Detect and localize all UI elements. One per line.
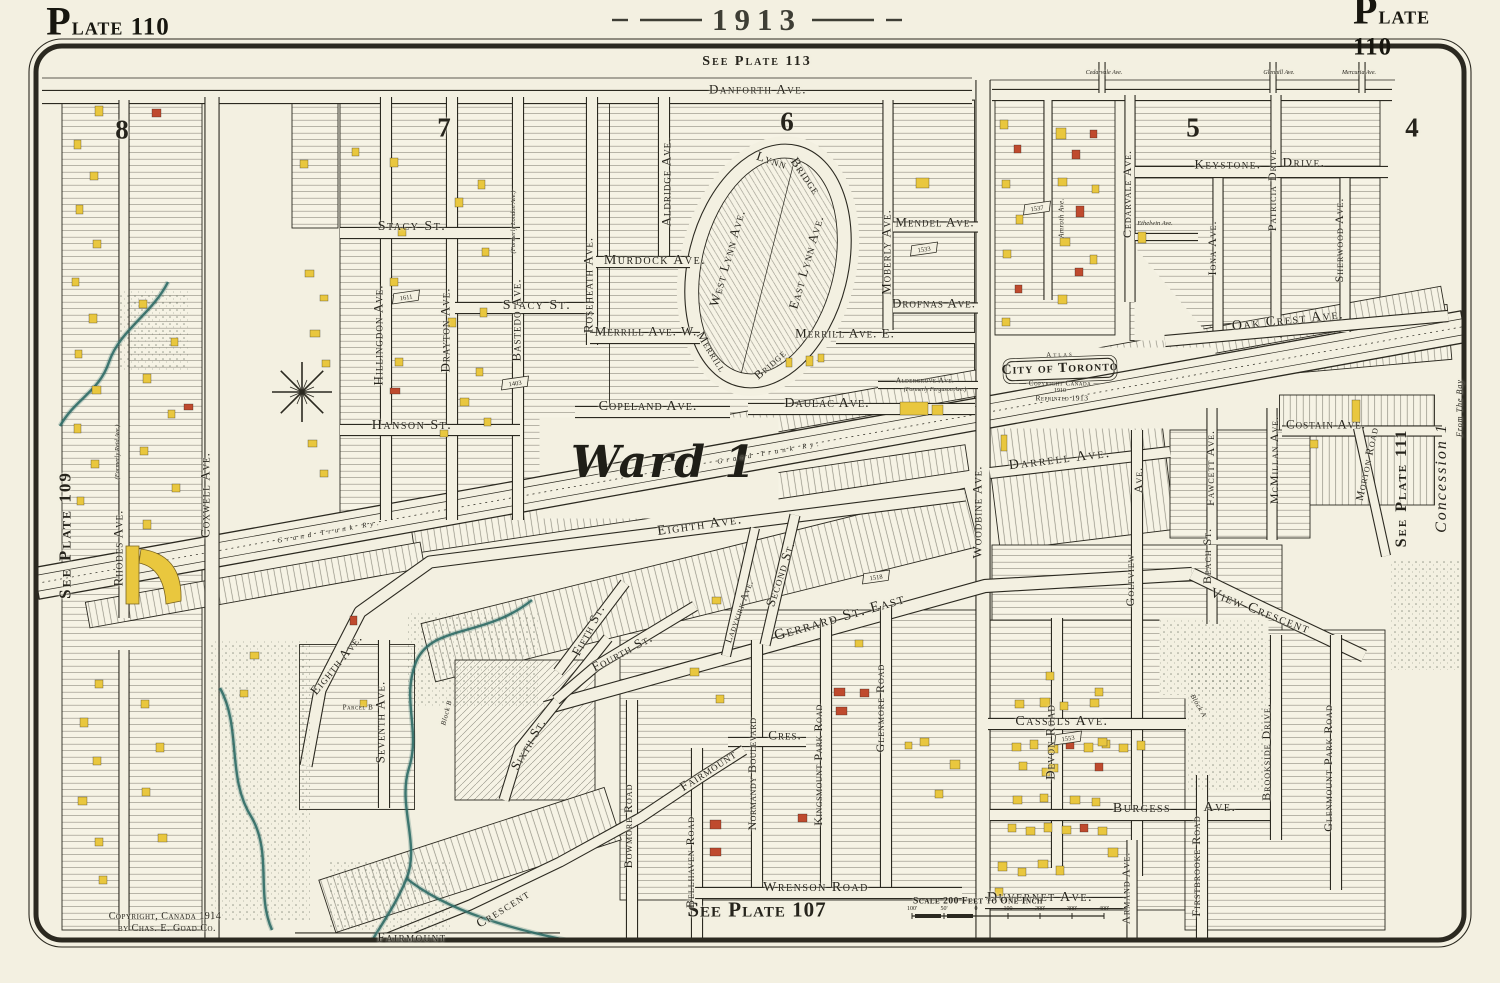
scale-tick-label: 100' [907, 906, 917, 912]
bowmore-road-label: Bowmore Road [622, 784, 634, 869]
building-yellow [935, 790, 943, 798]
rhodes-ave-label: Rhodes Ave. [112, 510, 125, 587]
hillingdon-ave-label: Hillingdon Ave. [372, 284, 385, 385]
map-page: 140315181533153715531611100'50'0100200'3… [0, 0, 1500, 983]
rhodes-formerly: (Formerly Reid Ave.) [115, 425, 122, 480]
scale-tick-label: 400' [1099, 906, 1109, 912]
building-yellow [80, 718, 88, 727]
building-yellow [250, 652, 259, 659]
kingsmount-park-road-label: Kingsmount Park Road [812, 704, 824, 826]
cedarvale-ave-label: Cedarvale Ave. [1121, 150, 1133, 238]
ravine-stipple [210, 640, 310, 920]
aldergrove-ave-label: Aldergrove Ave. [896, 376, 955, 384]
building-yellow [310, 330, 320, 337]
murdock-ave-label: Murdock Ave. [604, 254, 706, 268]
ravine-stipple [120, 290, 190, 370]
glenmore-road-label: Glenmore Road [874, 664, 886, 753]
building-yellow [1018, 868, 1026, 876]
building-yellow [1015, 700, 1024, 708]
building-yellow [478, 180, 485, 189]
building-red [1014, 145, 1021, 153]
building-yellow [305, 270, 314, 277]
building-yellow [1098, 738, 1107, 746]
building-red [350, 616, 357, 625]
building-yellow [712, 597, 721, 604]
building-yellow [690, 668, 699, 676]
scale-tick-label: 0 [975, 906, 978, 912]
ethelwin-ave-label: Ethelwin Ave. [1137, 221, 1173, 228]
see-plate-113: See Plate 113 [702, 55, 811, 69]
building-yellow [1137, 741, 1145, 750]
building-yellow [1092, 185, 1099, 193]
building-red [860, 689, 869, 697]
stamp-reprinted: Reprinted 1913 [1035, 394, 1088, 402]
amroth-ave-label: Amroth Ave. [1059, 198, 1066, 238]
building-yellow [1056, 128, 1066, 139]
firstbrooke-road-label: Firstbrooke Road [1190, 815, 1202, 916]
building-yellow [1056, 866, 1064, 875]
building-yellow [95, 680, 103, 688]
scale-tick-label: 200' [1035, 906, 1045, 912]
building-yellow [1002, 180, 1010, 188]
building-yellow [1095, 688, 1103, 696]
building-yellow [1016, 215, 1023, 224]
building-yellow [72, 278, 79, 286]
city-block [620, 610, 990, 900]
building-yellow [900, 402, 928, 415]
building-yellow [92, 386, 101, 394]
map-year-title: 1913 [712, 2, 802, 38]
concession-1-label: Concession 1 [1434, 423, 1450, 533]
ravine-stipple [408, 612, 538, 707]
building-yellow [89, 314, 97, 323]
building-red [1015, 285, 1022, 293]
building-yellow [1001, 435, 1007, 451]
building-yellow [806, 356, 813, 366]
danforth-ave-label: Danforth Ave. [709, 83, 807, 96]
keystone-drive-label-1: Keystone. [1195, 158, 1262, 171]
building-yellow [142, 788, 150, 796]
building-red [1080, 824, 1088, 832]
keystone-drive-label-2: Drive. [1283, 156, 1326, 169]
scale-tick-label: 50' [940, 906, 947, 912]
building-yellow [395, 358, 403, 366]
compass-star-ray [302, 392, 323, 413]
scale-bar-segment [915, 914, 941, 918]
building-yellow [91, 460, 99, 468]
merrill-ave-e-label: Merrill Ave. E. [795, 327, 895, 340]
building-yellow [1060, 702, 1068, 710]
building-yellow [1098, 827, 1107, 835]
drofnas-ave-label: Drofnas Ave. [892, 297, 976, 310]
building-yellow [390, 158, 398, 167]
building-yellow [1090, 255, 1097, 264]
compass-star-ray [281, 371, 302, 392]
glenhill-stub-label: Glenhill Ave. [1263, 70, 1294, 76]
scale-bar-segment [947, 914, 973, 918]
building-yellow [1046, 672, 1054, 680]
building-yellow [482, 248, 489, 256]
building-yellow [1044, 823, 1052, 832]
building-yellow [932, 405, 943, 415]
city-block [1170, 430, 1310, 538]
building-yellow [78, 797, 87, 805]
building-yellow [1108, 848, 1118, 857]
hanson-st-label: Hanson St. [372, 419, 452, 433]
building-yellow [1119, 744, 1128, 752]
building-yellow [1030, 740, 1038, 749]
building-red [1075, 268, 1083, 276]
copeland-ave-label: Copeland Ave. [599, 400, 698, 414]
building-red [1095, 763, 1103, 771]
building-red [1090, 130, 1097, 138]
building-yellow [74, 140, 81, 149]
building-yellow [158, 834, 167, 842]
burgess-ave-label-2: Ave. [1204, 801, 1237, 815]
building-yellow [352, 148, 359, 156]
building-yellow [320, 470, 328, 477]
parcel-b-label: Parcel B [343, 705, 374, 712]
daulac-ave-label: Daulac Ave. [784, 397, 869, 411]
cedarvale-stub-label: Cedarvale Ave. [1086, 70, 1123, 76]
glenmount-park-road-label: Glenmount Park Road [1322, 704, 1334, 831]
normandy-boulevard-label: Normandy Boulevard [746, 718, 758, 831]
merrill-ave-w-label: Merrill Ave. W. [595, 325, 698, 338]
scale-label: Scale 200 Feet to One Inch [913, 897, 1043, 907]
building-yellow [1026, 827, 1035, 835]
building-yellow [950, 760, 960, 769]
coxwell-ave-label: Coxwell Ave. [199, 452, 212, 538]
see-plate-107: See Plate 107 [687, 900, 826, 921]
plate-number-left: Plate 110 [46, 0, 170, 45]
building-yellow [916, 178, 929, 188]
building-yellow [75, 350, 82, 358]
district-4: 4 [1405, 115, 1419, 142]
building-yellow [93, 757, 101, 765]
district-8: 8 [115, 117, 129, 144]
golfview-ave-label-2: Ave. [1132, 467, 1144, 493]
building-red [1072, 150, 1080, 159]
fairmount-label: Fairmount [377, 931, 446, 944]
iona-ave-label: Iona Ave. [1206, 221, 1218, 276]
copyright-line-1: Copyright, Canada 1914 [109, 912, 222, 922]
armand-ave-label: Armand Ave. [1122, 852, 1133, 924]
compass-star-ray [302, 371, 323, 392]
roseheath-ave-label: Roseheath Ave. [582, 237, 595, 333]
district-6: 6 [780, 109, 794, 136]
building-red [710, 820, 721, 829]
building-yellow [168, 410, 175, 418]
building-yellow [1002, 318, 1010, 326]
mcmillan-ave-label: McMillan Ave. [1268, 416, 1280, 504]
bastedo-formerly: (Formerly London Ave.) [511, 191, 518, 254]
building-yellow [1090, 699, 1099, 707]
fairmount-crescent-label-2: Cres. [768, 729, 801, 742]
costain-ave-label: Costain Ave. [1286, 418, 1366, 431]
brookside-drive-label: Brookside Drive. [1260, 703, 1272, 801]
building-red [834, 688, 845, 696]
building-yellow [1092, 798, 1100, 806]
building-yellow [322, 360, 330, 367]
building-yellow [1012, 743, 1021, 751]
building-yellow [1008, 824, 1016, 832]
building-red [184, 404, 193, 410]
aldergrove-formerly: (Formerly Ferguson Ave.) [904, 387, 966, 393]
city-block [292, 100, 338, 228]
seventh-ave-label: Seventh Ave. [374, 681, 387, 763]
building-yellow [143, 520, 151, 529]
cassels-ave-label: Cassels Ave. [1015, 715, 1108, 729]
building-yellow [143, 374, 151, 383]
building-yellow [905, 742, 912, 749]
building-yellow [1060, 238, 1070, 246]
building-yellow [1084, 743, 1093, 752]
building-yellow [300, 160, 308, 168]
golfview-ave-label-1: Golfview [1124, 554, 1136, 607]
building-yellow [99, 876, 107, 884]
building-yellow [818, 354, 824, 362]
building-yellow [139, 300, 147, 308]
see-plate-109: See Plate 109 [57, 471, 74, 599]
stamp-copyright: — Copyright Canada — [1019, 381, 1101, 388]
compass-star-ray [281, 392, 302, 413]
wrenson-road-label: Wrenson Road [763, 881, 869, 895]
building-yellow [920, 738, 929, 746]
building-yellow [320, 295, 328, 301]
building-yellow [484, 418, 491, 426]
fawcett-ave-label: Fawcett Ave. [1204, 430, 1216, 506]
building-yellow [1040, 794, 1048, 802]
building-yellow [998, 862, 1007, 871]
building-yellow [93, 240, 101, 248]
bellhaven-road-label: Bellhaven Road [684, 816, 696, 908]
aldridge-ave-label: Aldridge Ave. [660, 137, 673, 226]
sherwood-ave-label: Sherwood Ave. [1333, 198, 1345, 283]
building-yellow [76, 205, 83, 214]
building-yellow [716, 695, 724, 703]
building-yellow [476, 368, 483, 376]
stamp-atlas: Atlas [1046, 351, 1074, 359]
mendel-ave-label: Mendel Ave. [895, 216, 974, 229]
building-red [798, 814, 807, 822]
ravine-stipple [1160, 620, 1265, 695]
scale-tick-label: 100 [1004, 906, 1013, 912]
building-yellow [141, 700, 149, 708]
building-yellow [90, 172, 98, 180]
building-yellow [1038, 860, 1048, 868]
plate-number-right: Plate 110 [1353, 0, 1451, 62]
building-yellow [240, 690, 248, 697]
building-yellow [308, 440, 317, 447]
building-yellow [786, 358, 792, 367]
ravine-stipple [330, 860, 450, 930]
district-5: 5 [1186, 115, 1200, 142]
building-yellow [1019, 762, 1027, 770]
ravine-stipple [1390, 560, 1460, 670]
woodbine-ave-label: Woodbine Ave. [971, 466, 984, 559]
building-yellow [172, 484, 180, 492]
building-yellow [1062, 826, 1071, 834]
building-red [1076, 206, 1084, 217]
building-yellow [1003, 250, 1011, 258]
building-yellow [390, 278, 398, 286]
patricia-drive-label: Patricia Drive [1266, 149, 1278, 232]
building-yellow [140, 447, 148, 455]
building-red [152, 109, 161, 117]
building-yellow [1058, 178, 1067, 186]
copyright-line-2: by Chas. E. Goad Co. [118, 924, 216, 934]
building-yellow [1000, 120, 1008, 129]
building-yellow [171, 338, 178, 346]
building-red [390, 388, 400, 394]
building-yellow [1058, 295, 1067, 304]
mercuria-stub-label: Mercuria Ave. [1342, 70, 1376, 76]
city-block [985, 620, 1185, 910]
building-red [710, 848, 721, 856]
scale-tick-label: 300' [1067, 906, 1077, 912]
building-yellow [1070, 796, 1080, 804]
building-yellow [455, 198, 463, 207]
moberly-ave-label: Moberly Ave. [880, 209, 893, 295]
stacy-st-1-label: Stacy St. [378, 220, 447, 234]
building-yellow [1138, 232, 1146, 243]
building-yellow [855, 640, 863, 647]
drayton-ave-label: Drayton Ave. [439, 287, 452, 372]
city-block [62, 100, 202, 930]
building-yellow [77, 497, 84, 505]
building-yellow [1013, 796, 1022, 804]
district-7: 7 [437, 115, 451, 142]
bastedo-ave-label: Bastedo Ave. [510, 278, 523, 361]
building-red [836, 707, 847, 715]
building-yellow [480, 308, 487, 317]
building-yellow [156, 743, 164, 752]
from-the-bay-label: From The Bay [1456, 379, 1464, 437]
building-yellow [74, 424, 81, 433]
burgess-ave-label-1: Burgess [1113, 802, 1171, 816]
beach-st-label: Beach St. [1201, 528, 1213, 584]
see-plate-111: See Plate 111 [1394, 429, 1410, 548]
building-yellow [95, 838, 103, 846]
building-yellow [95, 106, 103, 116]
building-yellow [460, 398, 469, 406]
building-yellow [1310, 440, 1318, 448]
